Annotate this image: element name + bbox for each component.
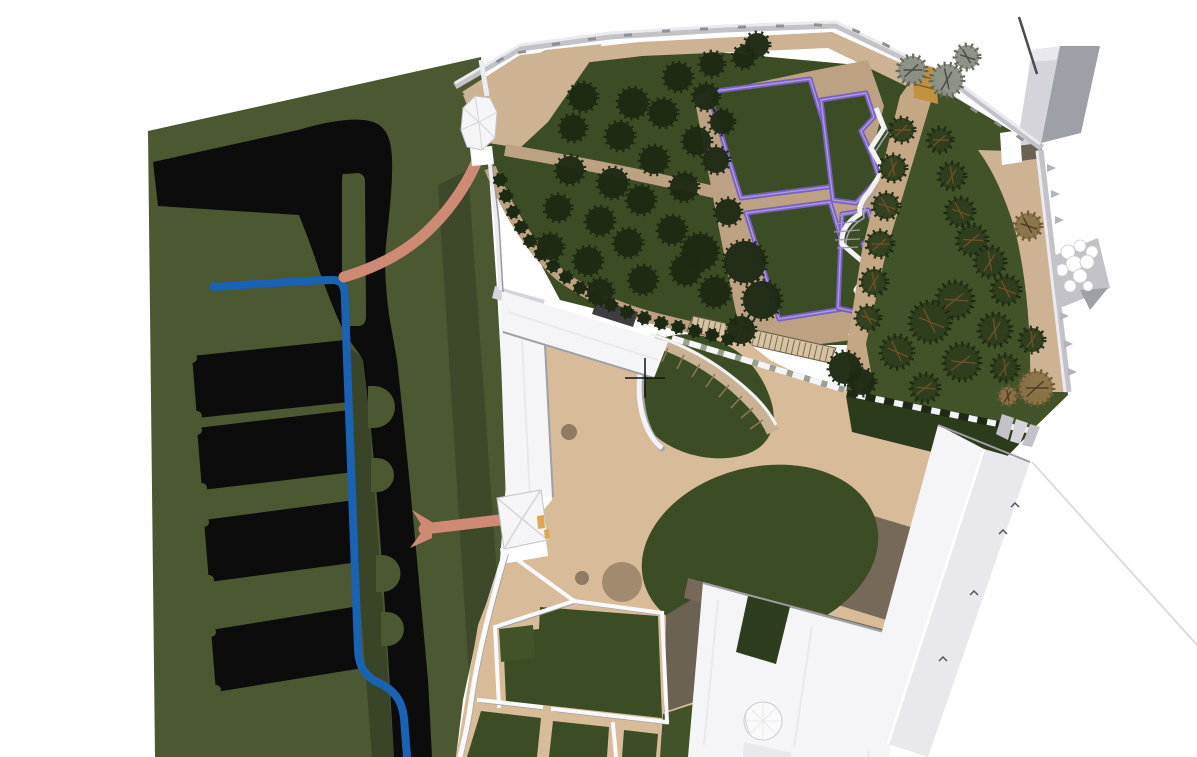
tree bbox=[910, 302, 950, 342]
amber-door bbox=[544, 529, 550, 539]
tree bbox=[1020, 328, 1044, 352]
wall-buttress bbox=[1051, 190, 1060, 198]
shrub bbox=[524, 235, 536, 247]
shrub bbox=[494, 174, 506, 186]
shrub bbox=[722, 333, 734, 345]
tree bbox=[944, 344, 980, 380]
tree bbox=[556, 156, 584, 184]
wall-buttress bbox=[1064, 340, 1073, 348]
tree bbox=[890, 118, 914, 142]
wall-buttress bbox=[1068, 368, 1077, 376]
tree bbox=[658, 216, 686, 244]
tree bbox=[614, 229, 642, 257]
tree bbox=[939, 163, 965, 189]
compartment-plot bbox=[499, 625, 535, 662]
tree bbox=[975, 247, 1005, 277]
tree bbox=[867, 231, 893, 257]
tree bbox=[979, 314, 1011, 346]
wall-merlon bbox=[700, 27, 708, 30]
wall-merlon bbox=[662, 29, 670, 32]
wall-merlon bbox=[776, 25, 784, 28]
ground-line bbox=[1032, 462, 1197, 645]
cad-3d-viewport[interactable] bbox=[0, 0, 1197, 757]
shrub bbox=[689, 325, 701, 337]
wall-buttress bbox=[1060, 312, 1069, 320]
tree bbox=[586, 207, 614, 235]
tree bbox=[574, 247, 602, 275]
tree bbox=[682, 234, 718, 270]
tree bbox=[700, 52, 724, 76]
amber-door bbox=[537, 515, 545, 529]
tree bbox=[545, 195, 571, 221]
model-viewport-stage bbox=[0, 0, 1197, 757]
tree bbox=[640, 146, 668, 174]
wall-buttress bbox=[1047, 164, 1056, 172]
bare-tree bbox=[898, 56, 926, 84]
tree bbox=[715, 199, 741, 225]
tree bbox=[724, 241, 766, 283]
tree bbox=[992, 276, 1020, 304]
northeast-building bbox=[1000, 17, 1100, 165]
tree bbox=[627, 186, 655, 214]
shrub bbox=[574, 282, 586, 294]
wall-merlon bbox=[624, 33, 632, 37]
tree bbox=[911, 374, 939, 402]
ground-spot-large bbox=[602, 562, 642, 602]
tree bbox=[700, 277, 730, 307]
shrub bbox=[500, 190, 512, 202]
tree bbox=[670, 173, 698, 201]
compartment-lawn-se bbox=[622, 730, 658, 757]
tree bbox=[560, 115, 586, 141]
tree bbox=[598, 168, 628, 198]
autumn-tree bbox=[999, 387, 1017, 405]
tree bbox=[861, 269, 887, 295]
ground-spot bbox=[561, 424, 577, 440]
tree bbox=[928, 128, 952, 152]
wall-merlon bbox=[738, 25, 746, 28]
autumn-tree bbox=[1019, 371, 1053, 405]
tree bbox=[856, 306, 880, 330]
tree bbox=[606, 122, 634, 150]
flagpole bbox=[1019, 17, 1037, 74]
shrub bbox=[507, 206, 519, 218]
shrub bbox=[621, 306, 633, 318]
shrub bbox=[535, 248, 547, 260]
west-field bbox=[148, 57, 510, 757]
shrub bbox=[638, 312, 650, 324]
tree bbox=[618, 88, 648, 118]
tree bbox=[664, 63, 692, 91]
shrub bbox=[706, 329, 718, 341]
shrub bbox=[547, 260, 559, 272]
tree bbox=[629, 266, 657, 294]
tree bbox=[873, 193, 899, 219]
tree bbox=[693, 84, 719, 110]
compartment-lawn-s bbox=[549, 721, 609, 757]
bare-tree bbox=[955, 45, 979, 69]
tree bbox=[569, 83, 597, 111]
tree bbox=[703, 147, 729, 173]
tree bbox=[649, 99, 677, 127]
palace-dome bbox=[744, 702, 782, 740]
shrub bbox=[515, 221, 527, 233]
tree bbox=[992, 355, 1018, 381]
shrub bbox=[560, 271, 572, 283]
wall-merlon bbox=[814, 23, 822, 26]
autumn-tree bbox=[1015, 213, 1041, 239]
shrub bbox=[589, 291, 601, 303]
tree bbox=[946, 198, 974, 226]
tree bbox=[683, 127, 711, 155]
tree bbox=[881, 336, 913, 368]
tree bbox=[849, 369, 875, 395]
shrub bbox=[672, 321, 684, 333]
bare-tree bbox=[931, 64, 963, 96]
shrub bbox=[655, 317, 667, 329]
shrub bbox=[605, 299, 617, 311]
tree bbox=[880, 155, 906, 181]
wall-buttress bbox=[1055, 216, 1064, 224]
tree bbox=[745, 33, 769, 57]
tree bbox=[743, 281, 781, 319]
tree bbox=[710, 110, 734, 134]
ground-spot bbox=[575, 571, 589, 585]
